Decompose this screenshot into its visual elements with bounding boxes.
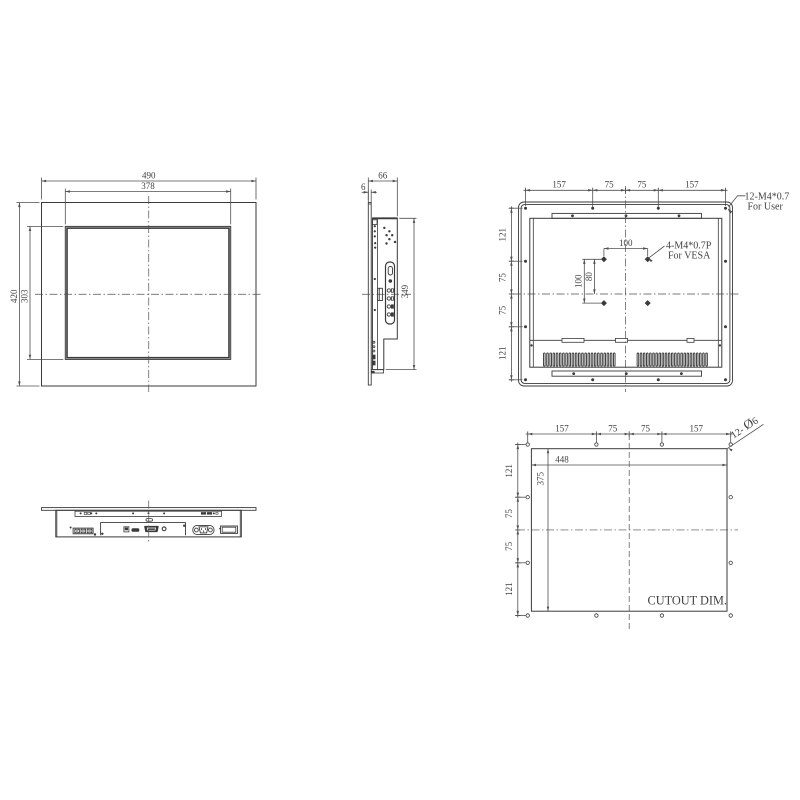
svg-text:157: 157: [685, 180, 699, 190]
svg-text:6: 6: [361, 182, 366, 192]
svg-text:100: 100: [619, 238, 633, 248]
svg-text:490: 490: [142, 170, 156, 180]
svg-text:303: 303: [19, 289, 29, 303]
svg-text:157: 157: [555, 423, 569, 433]
svg-text:80: 80: [584, 272, 594, 282]
svg-text:121: 121: [498, 228, 508, 242]
svg-text:For User: For User: [748, 202, 784, 213]
svg-text:75: 75: [498, 273, 508, 283]
svg-text:121: 121: [498, 347, 508, 361]
svg-text:66: 66: [378, 170, 388, 180]
svg-text:121: 121: [504, 464, 514, 478]
svg-text:448: 448: [555, 454, 569, 464]
svg-text:378: 378: [141, 181, 155, 191]
svg-text:121: 121: [504, 582, 514, 596]
svg-text:100: 100: [574, 274, 584, 288]
svg-text:For VESA: For VESA: [668, 251, 711, 262]
svg-text:157: 157: [552, 180, 566, 190]
svg-text:75: 75: [637, 180, 647, 190]
svg-text:75: 75: [641, 423, 651, 433]
svg-text:CUTOUT DIM.: CUTOUT DIM.: [648, 594, 727, 608]
svg-text:75: 75: [498, 305, 508, 315]
svg-text:75: 75: [504, 541, 514, 551]
svg-text:157: 157: [690, 423, 704, 433]
svg-text:375: 375: [536, 472, 546, 486]
svg-text:75: 75: [608, 423, 618, 433]
svg-text:75: 75: [605, 180, 615, 190]
svg-text:349: 349: [400, 284, 410, 298]
svg-text:420: 420: [9, 289, 19, 303]
svg-text:75: 75: [504, 509, 514, 519]
